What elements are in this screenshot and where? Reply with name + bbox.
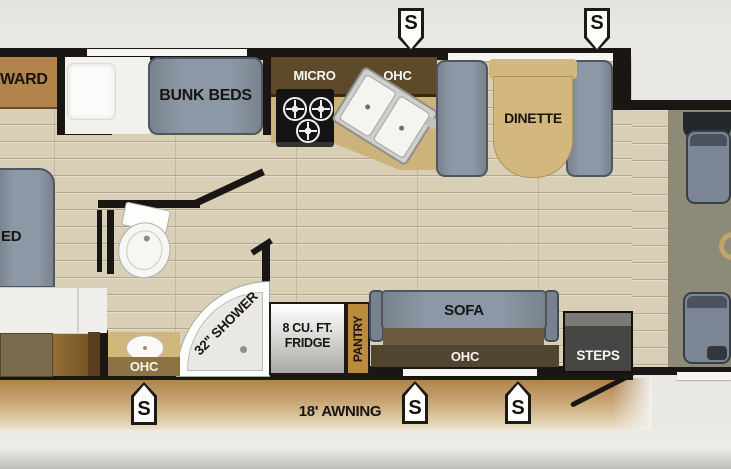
stove-icon <box>276 89 334 147</box>
fridge: 8 CU. FT. FRIDGE <box>269 302 346 375</box>
wardrobe-cabinet: WARD <box>0 57 57 109</box>
fridge-label-line2: FRIDGE <box>271 336 344 351</box>
seat-back <box>687 296 727 308</box>
bunk-slide-strip <box>87 49 247 56</box>
bed-label: ED <box>1 228 21 245</box>
bed-platform: ED <box>0 168 55 288</box>
bunk-label: BUNK BEDS <box>150 87 261 105</box>
bed-foot-seam <box>77 288 79 334</box>
sofa-slide-strip <box>403 369 537 376</box>
dinette-label: DINETTE <box>493 110 573 126</box>
speaker-letter: S <box>131 398 157 421</box>
burner-icon <box>309 97 333 121</box>
speaker-icon: S <box>131 382 157 425</box>
dinette-bench-left <box>436 60 488 177</box>
rv-floorplan: 18' AWNING WARD BUNK BEDS MICRO OHC <box>0 0 731 469</box>
screen-shadow <box>0 448 731 469</box>
vanity-ohc: OHC <box>108 357 180 376</box>
pantry: PANTRY <box>346 302 370 375</box>
speaker-letter: S <box>402 397 428 420</box>
vanity-wall <box>100 330 108 380</box>
vanity-side-cabinet <box>88 332 100 376</box>
kitchen-wall <box>263 53 271 135</box>
bunk-wall-vertical <box>57 48 65 135</box>
shower-drain <box>240 346 247 353</box>
vanity-ohc-label: OHC <box>130 359 158 374</box>
pillow-icon <box>67 63 116 120</box>
bunk-bed-platform: BUNK BEDS <box>148 57 263 135</box>
dinette-table: DINETTE <box>493 76 573 178</box>
sofa-ohc-label: OHC <box>451 349 479 364</box>
burner-icon <box>296 119 320 143</box>
right-wall-horizontal <box>613 100 731 110</box>
pantry-label: PANTRY <box>351 315 365 361</box>
speaker-icon: S <box>584 8 610 52</box>
speaker-letter: S <box>584 12 610 35</box>
driver-seat <box>683 292 731 364</box>
cab-entry-floor <box>632 110 668 372</box>
vanity-drain <box>143 346 147 350</box>
cab-threshold-strip <box>677 372 731 380</box>
awning-label: 18' AWNING <box>270 403 410 420</box>
toilet-bowl-inner <box>123 227 167 274</box>
steps-label: STEPS <box>576 348 619 363</box>
bedside-cabinet <box>0 333 53 377</box>
bed-foot <box>0 287 107 333</box>
sofa-back: SOFA <box>381 290 547 330</box>
sofa-ohc: OHC <box>371 345 559 367</box>
awning-fade <box>612 378 652 430</box>
speaker-letter: S <box>398 12 424 35</box>
entry-steps: STEPS <box>563 311 633 373</box>
passenger-seat <box>686 130 731 204</box>
speaker-icon: S <box>505 381 531 424</box>
speaker-letter: S <box>505 397 531 420</box>
fridge-label-line1: 8 CU. FT. <box>271 321 344 336</box>
micro-label: MICRO <box>293 68 335 83</box>
speaker-icon: S <box>402 381 428 424</box>
speaker-icon: S <box>398 8 424 52</box>
burner-icon <box>283 97 307 121</box>
seat-back <box>690 134 727 146</box>
sofa-label: SOFA <box>383 302 545 319</box>
wardrobe-label: WARD <box>0 71 48 89</box>
bath-pocket-door-track <box>97 210 102 272</box>
seat-console <box>707 346 727 360</box>
